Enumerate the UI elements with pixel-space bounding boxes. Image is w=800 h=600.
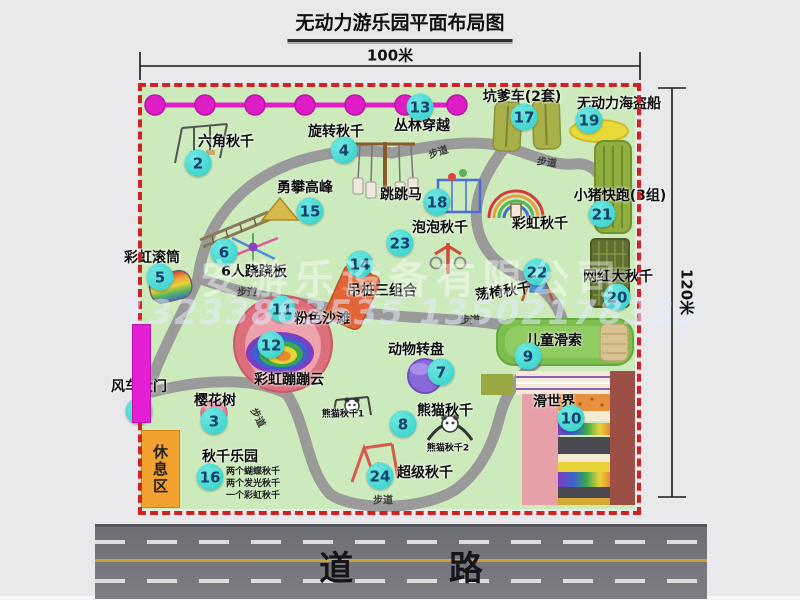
badge-19: 19	[576, 107, 603, 134]
badge-12: 12	[258, 332, 285, 359]
badge-23: 23	[387, 230, 414, 257]
badge-24: 24	[367, 463, 394, 490]
dimension-width-label: 100米	[367, 45, 413, 66]
walkway-label: 步道	[373, 492, 393, 507]
road: 道 路	[95, 524, 707, 599]
road-label: 道 路	[95, 541, 707, 590]
rest-area-label: 休息区	[150, 444, 171, 495]
badge-16: 16	[197, 464, 224, 491]
label-pink-beach: 粉色沙滩	[294, 308, 350, 328]
walkway-label: 步道	[237, 284, 257, 299]
walkway-label: 步道	[536, 152, 558, 170]
label-hanging-piles: 吊桩三组合	[347, 280, 417, 300]
badge-8: 8	[390, 411, 417, 438]
badge-7: 7	[428, 359, 455, 386]
badge-5: 5	[147, 264, 174, 291]
swing-park-note-1: 两个蝴蝶秋千	[226, 466, 280, 478]
swing-park-notes: 两个蝴蝶秋千 两个发光秋千 一个彩虹秋千	[226, 466, 280, 502]
badge-13: 13	[407, 94, 434, 121]
label-seesaw: 6人跷跷板	[221, 261, 287, 281]
label-panda-swing-2: 熊猫秋千2	[427, 441, 469, 454]
badge-17: 17	[511, 104, 538, 131]
badge-20: 20	[604, 284, 631, 311]
label-panda-swing: 熊猫秋千	[417, 400, 473, 420]
label-peak-climb: 勇攀高峰	[277, 177, 333, 197]
badge-15: 15	[297, 198, 324, 225]
badge-3: 3	[201, 408, 228, 435]
label-jump-horse: 跳跳马	[380, 184, 422, 204]
label-rainbow-swing: 彩虹秋千	[512, 213, 568, 233]
label-super-swing: 超级秋千	[397, 462, 453, 482]
label-pig-run: 小猪快跑(3组)	[574, 185, 667, 205]
label-bubble-swing: 泡泡秋千	[412, 217, 468, 237]
label-panda-swing-1: 熊猫秋千1	[322, 407, 364, 420]
badge-2: 2	[185, 150, 212, 177]
park-layout-poster: 无动力游乐园平面布局图	[0, 0, 800, 600]
rest-area: 休息区	[141, 430, 180, 508]
page-title: 无动力游乐园平面布局图	[287, 8, 512, 42]
dimension-height-label: 120米	[677, 269, 698, 315]
badge-22: 22	[524, 259, 551, 286]
badge-11: 11	[269, 296, 296, 323]
swing-park-note-2: 两个发光秋千	[226, 478, 280, 490]
label-hex-swing: 六角秋千	[198, 131, 254, 151]
swing-park-note-3: 一个彩虹秋千	[226, 490, 280, 502]
label-rainbow-cloud: 彩虹蹦蹦云	[254, 369, 324, 389]
badge-4: 4	[331, 137, 358, 164]
badge-6: 6	[211, 239, 238, 266]
windmill-gate-icon	[132, 324, 151, 423]
label-animal-carousel: 动物转盘	[388, 339, 444, 359]
badge-14: 14	[347, 251, 374, 278]
label-rainbow-roller: 彩虹滚筒	[124, 247, 180, 267]
walkway-label: 步道	[460, 312, 480, 327]
badge-9: 9	[515, 343, 542, 370]
badge-21: 21	[589, 201, 616, 228]
badge-18: 18	[424, 189, 451, 216]
badge-10: 10	[558, 405, 585, 432]
